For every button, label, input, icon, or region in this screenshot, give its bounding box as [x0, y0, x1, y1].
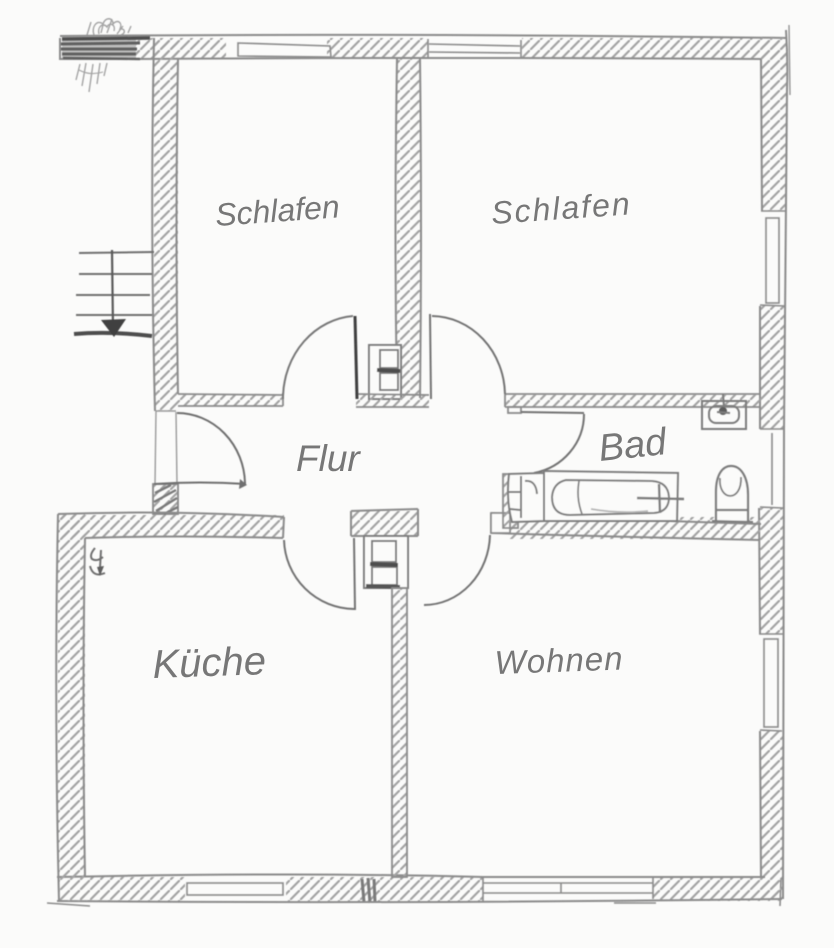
svg-text:Bad: Bad	[597, 421, 670, 470]
svg-text:Flur: Flur	[296, 438, 361, 479]
svg-text:Küche: Küche	[152, 639, 267, 687]
svg-text:Wohnen: Wohnen	[494, 640, 624, 681]
